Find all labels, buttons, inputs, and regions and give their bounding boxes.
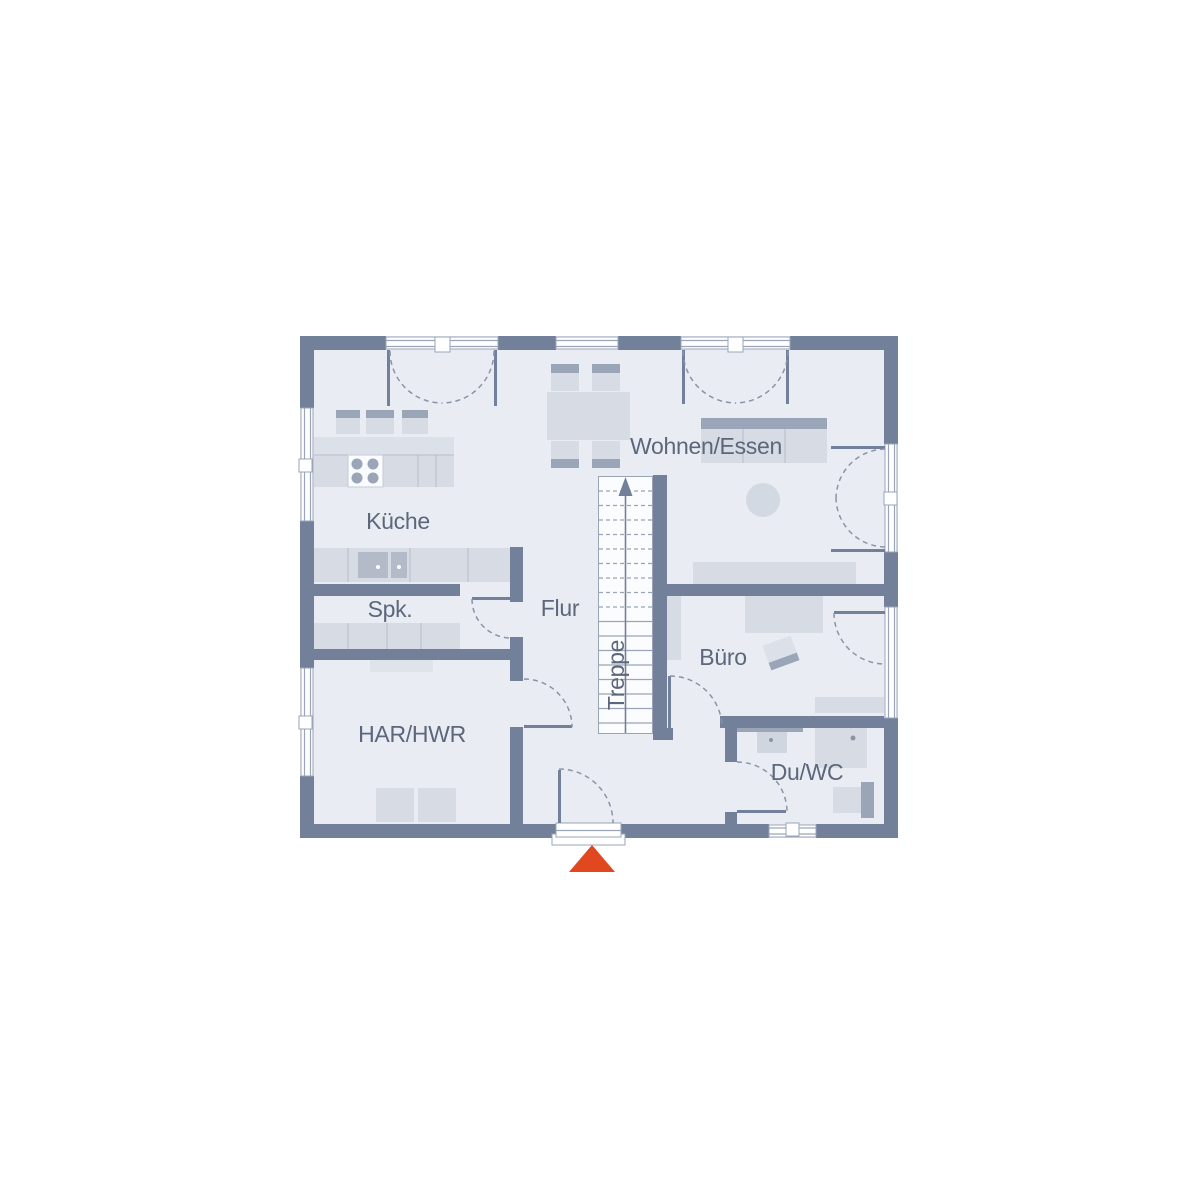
toilet-cistern [861, 782, 874, 818]
entrance-marker-icon [569, 845, 615, 872]
window-dining [556, 337, 618, 349]
entry-door-sill [552, 823, 625, 845]
room-label-flur: Flur [541, 595, 580, 621]
office-sideboard [815, 697, 884, 713]
floor-plan-svg: Küche Wohnen/Essen Flur Spk. Treppe Büro… [0, 0, 1200, 1200]
sideboard [693, 562, 856, 584]
room-label-har-hwr: HAR/HWR [358, 721, 466, 747]
bath-sink [757, 732, 787, 753]
washer [376, 788, 414, 822]
window-bath [769, 823, 816, 837]
dining-table [547, 392, 630, 440]
office-cabinet [667, 595, 681, 660]
coffee-table [746, 483, 780, 517]
room-label-spk: Spk. [368, 596, 413, 622]
stove [348, 455, 383, 487]
room-label-treppe: Treppe [603, 640, 629, 710]
window-kitchen-left [299, 408, 313, 521]
sink [358, 552, 388, 578]
pantry-furniture [314, 623, 460, 651]
utility-shelf [370, 658, 433, 672]
floor-plan-canvas: Küche Wohnen/Essen Flur Spk. Treppe Büro… [0, 0, 1200, 1200]
room-label-kueche: Küche [366, 508, 430, 534]
toilet [833, 787, 861, 813]
french-door-frame-terrace [884, 444, 897, 552]
room-label-du-wc: Du/WC [771, 759, 844, 785]
room-label-buero: Büro [699, 644, 746, 670]
desk [745, 596, 823, 633]
terrace-door-frame-office [885, 607, 897, 718]
window-utility-left [299, 668, 313, 776]
dryer [418, 788, 456, 822]
room-label-wohnen-essen: Wohnen/Essen [630, 433, 782, 459]
